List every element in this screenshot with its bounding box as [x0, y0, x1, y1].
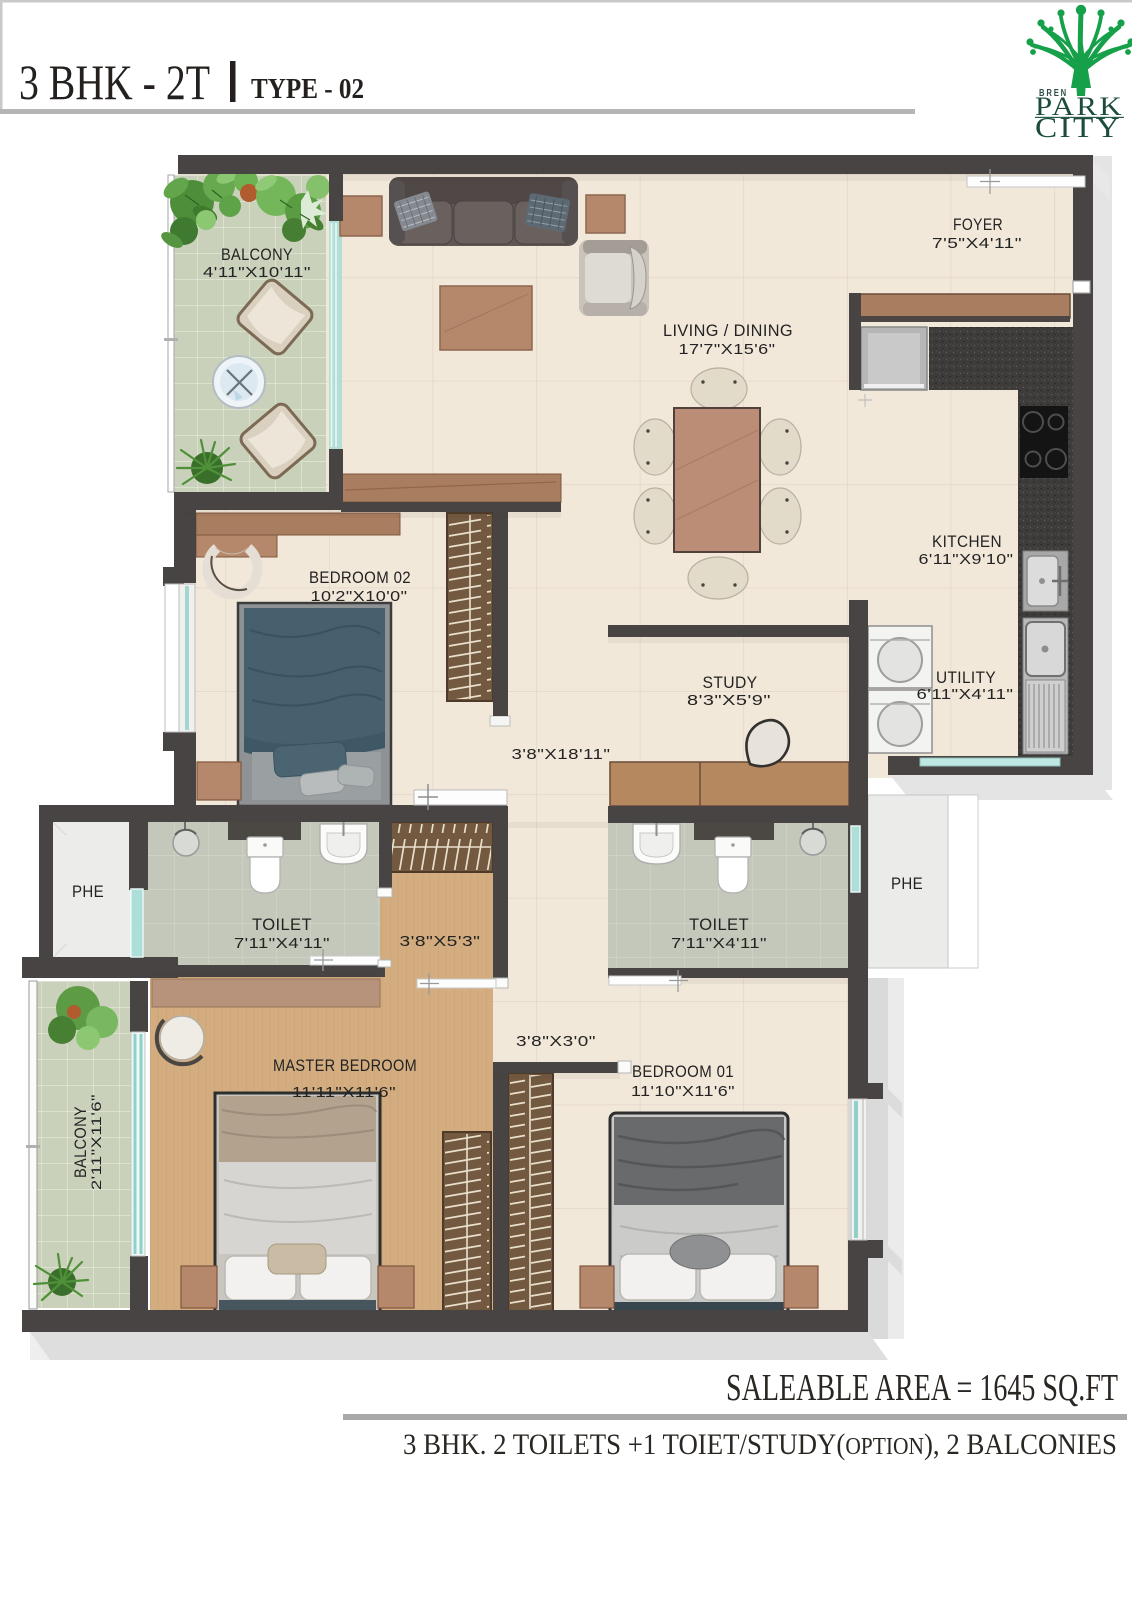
svg-text:MASTER BEDROOM: MASTER BEDROOM [273, 1056, 417, 1075]
svg-text:STUDY: STUDY [703, 673, 758, 692]
svg-text:TYPE - 02: TYPE - 02 [251, 74, 364, 105]
svg-text:TOILET: TOILET [689, 915, 749, 934]
svg-text:LIVING / DINING: LIVING / DINING [663, 321, 793, 340]
svg-text:3 BHK. 2 TOILETS +1 TOIET/STUD: 3 BHK. 2 TOILETS +1 TOIET/STUDY(OPTION),… [403, 1428, 1117, 1461]
svg-text:7'5"X4'11": 7'5"X4'11" [932, 235, 1022, 252]
svg-text:2'11"X11'6": 2'11"X11'6" [88, 1094, 104, 1190]
svg-text:7'11"X4'11": 7'11"X4'11" [234, 935, 330, 952]
svg-text:PHE: PHE [891, 874, 923, 893]
svg-text:11'11"X11'6": 11'11"X11'6" [292, 1084, 396, 1101]
svg-text:3'8"X3'0": 3'8"X3'0" [516, 1033, 596, 1050]
svg-text:BEDROOM 02: BEDROOM 02 [309, 568, 411, 587]
svg-text:6'11"X4'11": 6'11"X4'11" [917, 686, 1014, 703]
svg-text:3'8"X5'3": 3'8"X5'3" [400, 933, 481, 950]
svg-text:3 BHK - 2T: 3 BHK - 2T [19, 54, 210, 110]
svg-text:17'7"X15'6": 17'7"X15'6" [679, 341, 776, 358]
svg-text:KITCHEN: KITCHEN [932, 532, 1002, 551]
svg-text:11'10"X11'6": 11'10"X11'6" [631, 1083, 735, 1100]
svg-text:FOYER: FOYER [953, 215, 1003, 234]
svg-text:UTILITY: UTILITY [936, 668, 996, 687]
svg-text:BEDROOM 01: BEDROOM 01 [632, 1062, 734, 1081]
svg-text:7'11"X4'11": 7'11"X4'11" [671, 935, 767, 952]
svg-text:BALCONY: BALCONY [221, 245, 293, 264]
svg-text:SALEABLE AREA = 1645 SQ.FT: SALEABLE AREA = 1645 SQ.FT [726, 1367, 1118, 1409]
svg-text:10'2"X10'0": 10'2"X10'0" [311, 588, 408, 605]
svg-text:3'8"X18'11": 3'8"X18'11" [512, 746, 611, 763]
svg-text:8'3"X5'9": 8'3"X5'9" [687, 692, 771, 709]
svg-text:TOILET: TOILET [252, 915, 312, 934]
svg-text:PHE: PHE [72, 882, 104, 901]
svg-text:4'11"X10'11": 4'11"X10'11" [203, 264, 311, 281]
svg-text:6'11"X9'10": 6'11"X9'10" [919, 551, 1014, 568]
svg-text:CITY: CITY [1035, 113, 1122, 144]
